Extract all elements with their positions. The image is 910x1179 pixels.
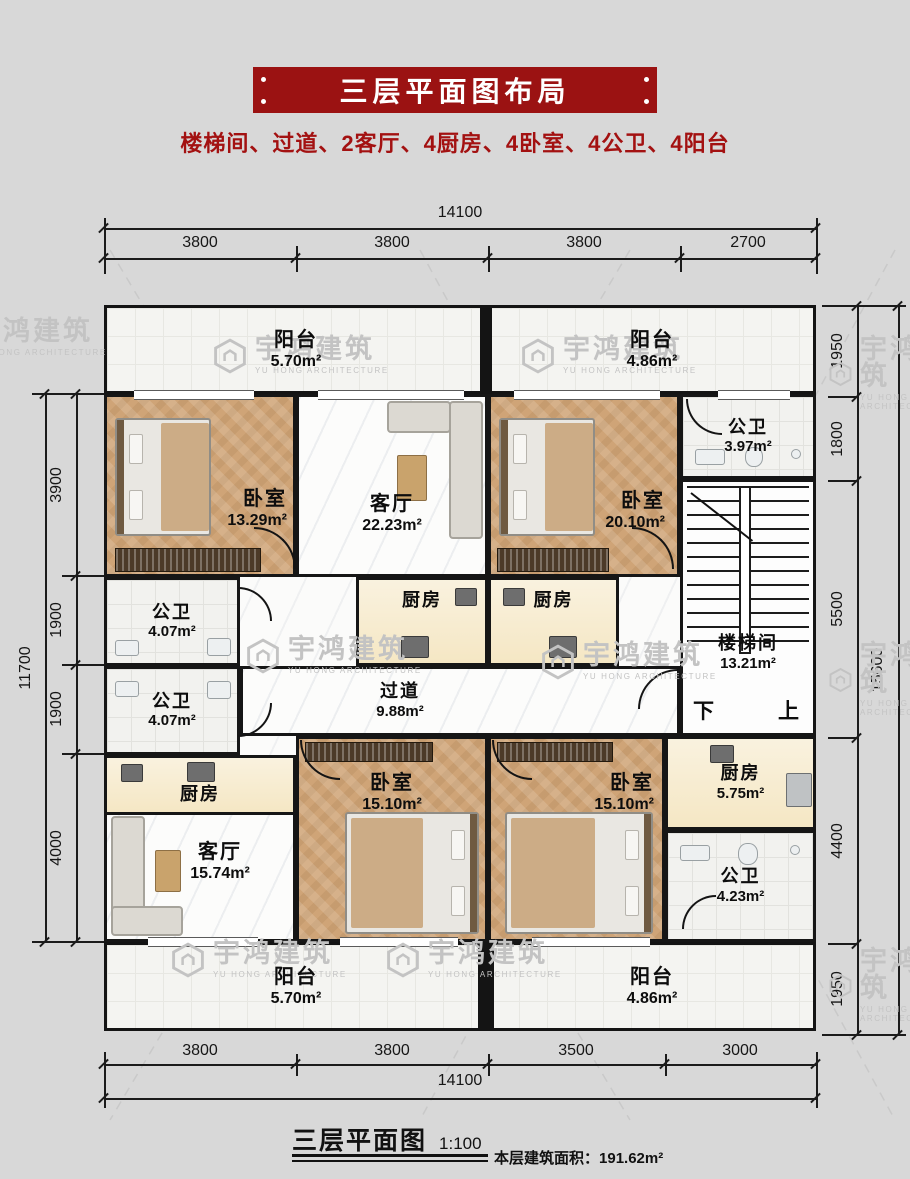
room-name: 公卫 <box>152 602 192 624</box>
stairs-down-label: 下 <box>693 695 714 725</box>
dim-extension <box>488 1054 490 1076</box>
dim-value: 15600 <box>869 630 887 710</box>
room-area: 4.07m² <box>148 712 196 730</box>
stove <box>121 764 143 782</box>
window <box>718 390 790 400</box>
dim-line <box>104 258 816 260</box>
dim-line <box>104 1098 816 1100</box>
room-balcony-bottom-left: 阳台 5.70m² <box>104 942 488 1031</box>
room-kitchen-bottom-right: 厨房 5.75m² <box>665 736 816 830</box>
kitchen-sink <box>549 636 577 658</box>
toilet <box>738 843 758 865</box>
dim-extension <box>665 1054 667 1076</box>
page-subtitle: 楼梯间、过道、2客厅、4厨房、4卧室、4公卫、4阳台 <box>0 126 910 158</box>
dim-extension <box>816 218 818 274</box>
kitchen-sink <box>401 636 429 658</box>
dim-extension <box>828 480 858 482</box>
room-name: 阳台 <box>274 328 318 352</box>
window <box>532 937 650 947</box>
dim-value: 4000 <box>48 808 66 888</box>
toilet <box>745 447 763 467</box>
room-name: 阳台 <box>274 965 318 989</box>
room-label: 阳台 4.86m² <box>495 949 809 1024</box>
stairs-up-label: 上 <box>778 695 799 725</box>
dim-line <box>104 228 816 230</box>
plan-caption-scale: 1:100 <box>439 1134 482 1154</box>
balcony-divider-wall <box>478 942 494 1031</box>
wardrobe <box>115 548 261 572</box>
page-title: 三层平面图布局 <box>339 70 570 110</box>
window <box>340 937 458 947</box>
dim-value: 3900 <box>48 445 66 525</box>
dim-value: 11700 <box>17 628 35 708</box>
blanket <box>545 423 593 531</box>
dim-line <box>45 394 47 942</box>
caption-underline <box>292 1154 488 1157</box>
sink <box>115 640 139 656</box>
room-name: 厨房 <box>721 763 761 785</box>
room-area: 4.86m² <box>627 352 678 371</box>
pillow <box>129 434 143 464</box>
room-kitchen-mid-left: 厨房 <box>356 577 488 666</box>
dim-extension <box>680 246 682 272</box>
window <box>318 390 464 400</box>
blanket <box>161 423 209 531</box>
dim-extension <box>828 943 858 945</box>
dim-extension <box>62 664 104 666</box>
room-name: 卧室 <box>370 771 414 795</box>
room-balcony-top-left: 阳台 5.70m² <box>104 305 488 394</box>
sofa <box>449 401 483 539</box>
room-label: 阳台 5.70m² <box>111 312 481 387</box>
pillow <box>451 830 465 860</box>
room-label: 过道 9.88m² <box>247 673 673 729</box>
banner-dot <box>261 77 266 82</box>
room-area: 4.23m² <box>717 888 765 906</box>
plan-caption-title: 三层平面图 <box>292 1121 427 1157</box>
bed-headboard <box>644 814 651 932</box>
dim-extension <box>488 246 490 272</box>
room-area: 13.21m² <box>720 655 776 673</box>
dim-extension <box>822 1034 906 1036</box>
blanket <box>511 818 595 928</box>
dim-line <box>857 306 859 1035</box>
room-area: 5.70m² <box>271 989 322 1008</box>
dim-value: 2700 <box>688 234 808 252</box>
dim-extension <box>62 753 104 755</box>
room-name: 厨房 <box>402 590 442 612</box>
dim-value: 1800 <box>829 399 847 479</box>
banner-dot <box>261 99 266 104</box>
banner-dot <box>644 77 649 82</box>
dim-extension <box>816 1052 818 1108</box>
room-name: 公卫 <box>152 691 192 713</box>
room-name: 厨房 <box>180 784 220 806</box>
dim-extension <box>104 1052 106 1108</box>
dim-value: 5500 <box>829 569 847 649</box>
kitchen-sink <box>187 762 215 782</box>
room-corridor: 过道 9.88m² <box>240 666 680 736</box>
dim-value: 14100 <box>400 1072 520 1090</box>
dim-extension <box>32 941 104 943</box>
dim-value: 14100 <box>400 204 520 222</box>
pillow <box>625 830 639 860</box>
toilet <box>207 681 231 699</box>
caption-underline <box>292 1160 488 1162</box>
room-kitchen-mid-right: 厨房 <box>488 577 619 666</box>
bed-headboard <box>501 420 508 534</box>
room-name: 阳台 <box>630 328 674 352</box>
room-living-top: 客厅 22.23m² <box>296 394 488 577</box>
bed <box>115 418 211 536</box>
room-kitchen-bottom-left: 厨房 <box>104 755 296 815</box>
shower-head <box>791 449 801 459</box>
sink <box>695 449 725 465</box>
bed <box>499 418 595 536</box>
room-area: 15.74m² <box>190 864 250 883</box>
room-name: 公卫 <box>721 866 761 888</box>
room-bath-mid-lower: 公卫 4.07m² <box>104 666 240 755</box>
pillow <box>129 490 143 520</box>
window <box>148 937 258 947</box>
pillow <box>513 434 527 464</box>
sofa <box>387 401 451 433</box>
room-bath-mid-upper: 公卫 4.07m² <box>104 577 240 666</box>
dim-value: 1900 <box>48 580 66 660</box>
room-area: 4.07m² <box>148 623 196 641</box>
coffee-table <box>155 850 181 892</box>
dim-extension <box>828 737 858 739</box>
title-banner: 三层平面图布局 <box>253 67 657 113</box>
room-name: 公卫 <box>728 417 768 439</box>
dim-value: 3800 <box>140 234 260 252</box>
floor-area-note: 本层建筑面积：191.62m² <box>494 1147 663 1168</box>
dim-value: 3800 <box>332 234 452 252</box>
fridge <box>786 773 812 807</box>
floor-area-label: 本层建筑面积： <box>494 1150 599 1167</box>
room-name: 卧室 <box>610 771 654 795</box>
coffee-table <box>397 455 427 501</box>
bed-headboard <box>117 420 124 534</box>
shower-head <box>790 845 800 855</box>
wardrobe <box>497 548 609 572</box>
room-area: 5.70m² <box>271 352 322 371</box>
room-label: 阳台 5.70m² <box>111 949 481 1024</box>
dim-line <box>76 394 78 942</box>
dim-extension <box>822 305 906 307</box>
toilet <box>207 638 231 656</box>
dim-value: 1950 <box>829 311 847 391</box>
balcony-divider-wall <box>480 305 492 394</box>
floor-plan: 阳台 5.70m² 阳台 4.86m² 阳台 5.70m² 阳台 4.86m² <box>104 303 816 1033</box>
sink <box>680 845 710 861</box>
plan-caption: 三层平面图 1:100 <box>292 1121 482 1157</box>
banner-dot <box>644 99 649 104</box>
stove <box>503 588 525 606</box>
floor-plan-poster: 三层平面图布局 楼梯间、过道、2客厅、4厨房、4卧室、4公卫、4阳台 阳台 5.… <box>0 0 910 1179</box>
dim-extension <box>104 218 106 274</box>
dim-extension <box>32 393 104 395</box>
dim-extension <box>296 1054 298 1076</box>
bed-headboard <box>470 814 477 932</box>
pillow <box>625 886 639 916</box>
dim-value: 4400 <box>829 801 847 881</box>
pillow <box>451 886 465 916</box>
dim-line <box>898 306 900 1035</box>
dim-value: 1900 <box>48 669 66 749</box>
stair-rail <box>739 486 751 654</box>
pillow <box>513 490 527 520</box>
dim-value: 3800 <box>332 1042 452 1060</box>
stove <box>455 588 477 606</box>
dim-value: 3800 <box>140 1042 260 1060</box>
window <box>134 390 254 400</box>
room-label: 阳台 4.86m² <box>495 312 809 387</box>
dim-extension <box>62 575 104 577</box>
room-area: 4.86m² <box>627 989 678 1008</box>
bed <box>345 812 479 934</box>
room-name: 卧室 <box>621 489 665 513</box>
sink <box>115 681 139 697</box>
room-name: 客厅 <box>198 840 242 864</box>
room-name: 厨房 <box>534 590 574 612</box>
dim-line <box>104 1064 816 1066</box>
window <box>514 390 660 400</box>
room-balcony-top-right: 阳台 4.86m² <box>488 305 816 394</box>
room-balcony-bottom-right: 阳台 4.86m² <box>488 942 816 1031</box>
dim-value: 3000 <box>680 1042 800 1060</box>
room-name: 卧室 <box>243 487 287 511</box>
blanket <box>351 818 423 928</box>
room-area: 22.23m² <box>362 516 422 535</box>
sofa <box>111 906 183 936</box>
room-name: 阳台 <box>630 965 674 989</box>
room-area: 5.75m² <box>717 785 765 803</box>
floor-area-value: 191.62m² <box>599 1150 663 1167</box>
dim-value: 3500 <box>516 1042 636 1060</box>
dim-value: 1950 <box>829 949 847 1029</box>
room-area: 9.88m² <box>376 703 424 721</box>
dim-value: 3800 <box>524 234 644 252</box>
bed <box>505 812 653 934</box>
room-name: 过道 <box>380 681 420 703</box>
dim-extension <box>828 396 858 398</box>
dim-extension <box>296 246 298 272</box>
room-stairwell: 楼梯间 13.21m² 下 上 <box>680 479 816 736</box>
stove <box>710 745 734 763</box>
